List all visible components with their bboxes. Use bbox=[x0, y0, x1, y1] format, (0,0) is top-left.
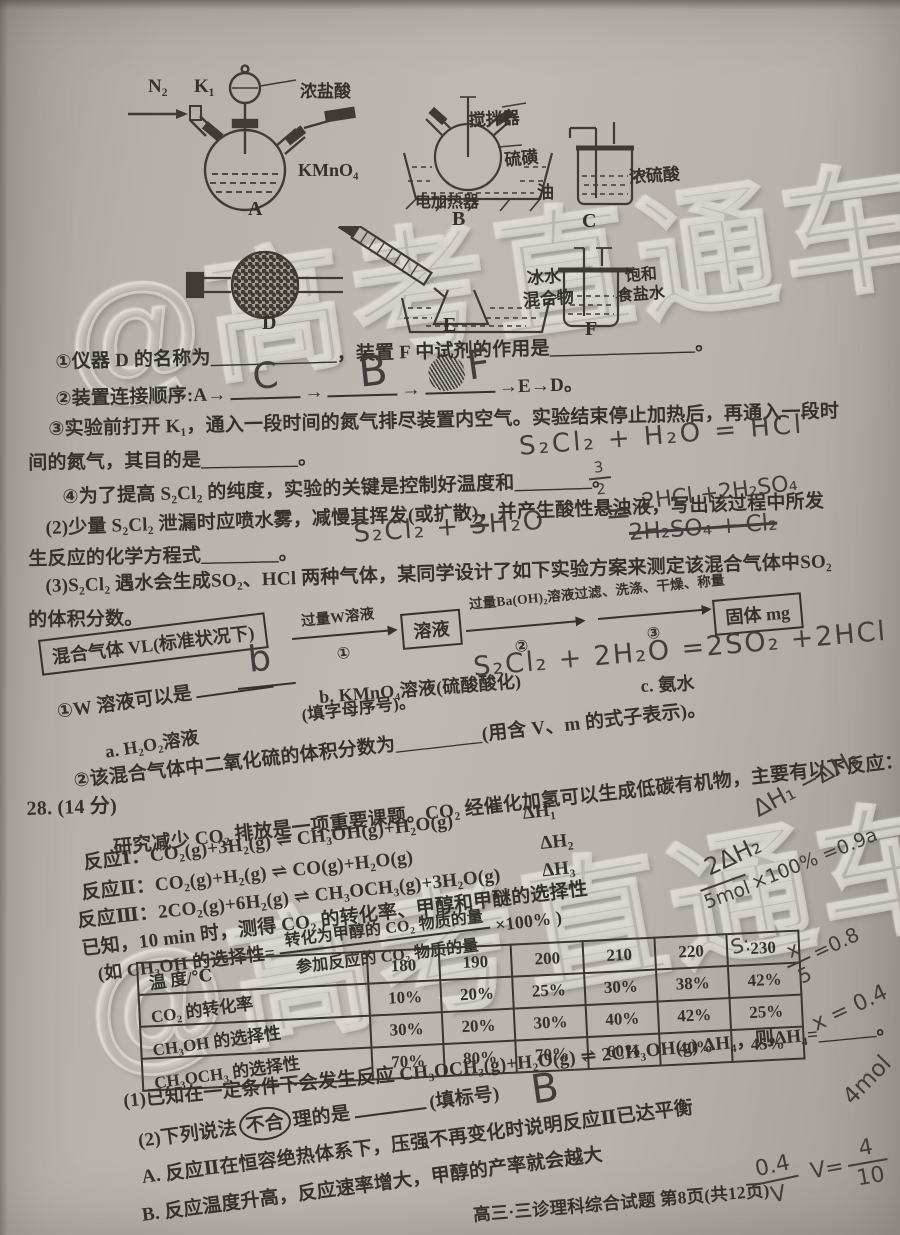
page-footer: 高三·三诊理科综合试题 第8页(共12页) bbox=[472, 1177, 770, 1227]
frac3-denominator: 10 bbox=[849, 1160, 893, 1193]
eq2-mid: H₂O bbox=[488, 506, 546, 540]
table-temp-cell: 220 bbox=[654, 934, 727, 969]
coef-numerator: 3 bbox=[587, 457, 611, 480]
table-value-cell: 20% bbox=[440, 977, 513, 1012]
table-value-cell: 38% bbox=[656, 966, 729, 1001]
table-temp-cell: 190 bbox=[439, 945, 512, 980]
table-value-cell: 25% bbox=[512, 973, 585, 1008]
q27-w-question: ①W 溶液可以是 bbox=[55, 666, 279, 724]
table-temp-cell: 210 bbox=[583, 938, 656, 973]
table-value-cell: 30% bbox=[584, 970, 657, 1005]
table-value-cell: 30% bbox=[514, 1005, 587, 1040]
table-temp-cell: 180 bbox=[367, 948, 440, 983]
flow-arrow-2 bbox=[466, 620, 584, 632]
q27-line-p3b: 的体积分数。 bbox=[28, 603, 144, 632]
label-apparatus-d: D bbox=[262, 312, 276, 335]
arrow-glyph: → bbox=[401, 379, 421, 401]
answer-blank-q2 bbox=[352, 1091, 426, 1118]
flow-step1-num: ① bbox=[336, 643, 351, 664]
label-heater: 电加热器 bbox=[415, 188, 479, 212]
handwriting-v-equals: V=410 bbox=[806, 1132, 898, 1200]
label-k1: K₁ bbox=[194, 76, 214, 98]
q28-number: 28. (14 分) bbox=[26, 789, 117, 821]
scan-edge-shadow-top bbox=[0, 0, 900, 10]
flow-arrow-3 bbox=[598, 608, 710, 620]
flow-box-solution: 溶液 bbox=[400, 609, 463, 650]
table-value-cell: 40% bbox=[586, 1002, 659, 1037]
q28-reaction-2-dh: ΔH₂ bbox=[539, 830, 574, 854]
flow-step1-label: 过量W溶液 bbox=[300, 602, 375, 631]
circled-words: 不合 bbox=[237, 1104, 293, 1144]
arrow-glyph: → bbox=[304, 382, 324, 404]
q27-line-2-prefix: ②装置连接顺序:A→ bbox=[55, 384, 227, 410]
handwriting-4mol: 4mol bbox=[838, 1051, 897, 1110]
table-value-cell: 30% bbox=[370, 1012, 443, 1047]
eq2-left: S₂Cl₂ + bbox=[352, 512, 461, 549]
frac1-equals: =0.8 bbox=[809, 922, 863, 964]
label-conc-hcl: 浓盐酸 bbox=[300, 77, 351, 102]
label-saturated-brine-2: 食盐水 bbox=[616, 279, 666, 306]
handwriting-answer-b: b bbox=[246, 638, 273, 681]
flow-arrow-1 bbox=[292, 629, 396, 640]
scanned-exam-page: @高考直通车 @高考直通车 N₂ K₁ 浓盐酸 KMnO₄ A bbox=[0, 0, 900, 1235]
label-apparatus-e: E bbox=[443, 314, 456, 337]
q28-reaction-1-dh: ΔH₁ bbox=[521, 799, 556, 824]
label-apparatus-a: A bbox=[248, 198, 262, 221]
q27-w-question-text: ①W 溶液可以是 bbox=[56, 683, 194, 723]
label-apparatus-c: C bbox=[582, 210, 596, 233]
eq2-scribbled-coef: 3 bbox=[469, 510, 490, 541]
q27-line-2-suffix: →E→D。 bbox=[499, 374, 584, 397]
label-kmno4: KMnO₄ bbox=[298, 160, 358, 181]
table-value-cell: 20% bbox=[442, 1009, 515, 1044]
handwriting-seq-answer-b: B bbox=[356, 345, 390, 397]
label-sulfur: 硫磺 bbox=[503, 142, 539, 170]
scan-edge-shadow-left bbox=[0, 0, 8, 1235]
q28-sub2-mid: 理的是 bbox=[292, 1103, 352, 1131]
handwriting-04-over-v: 0.4V bbox=[742, 1148, 809, 1213]
q28-sub2-hint: (填标号) bbox=[428, 1083, 501, 1113]
table-temp-cell: 200 bbox=[511, 941, 584, 976]
table-value-cell: 10% bbox=[368, 980, 441, 1015]
label-conc-h2so4: 浓硫酸 bbox=[628, 159, 681, 187]
v-label: V= bbox=[808, 1154, 845, 1184]
q27-line-3b: 间的氮气，其目的是__________。 bbox=[28, 443, 317, 475]
label-stirrer: 搅拌器 bbox=[468, 103, 520, 131]
label-n2: N₂ bbox=[148, 76, 167, 98]
q27-option-c: c. 氨水 bbox=[640, 669, 695, 698]
q28-sub2-prefix: (2)下列说法 bbox=[137, 1118, 238, 1152]
selectivity-suffix: ×100% ) bbox=[494, 907, 563, 935]
